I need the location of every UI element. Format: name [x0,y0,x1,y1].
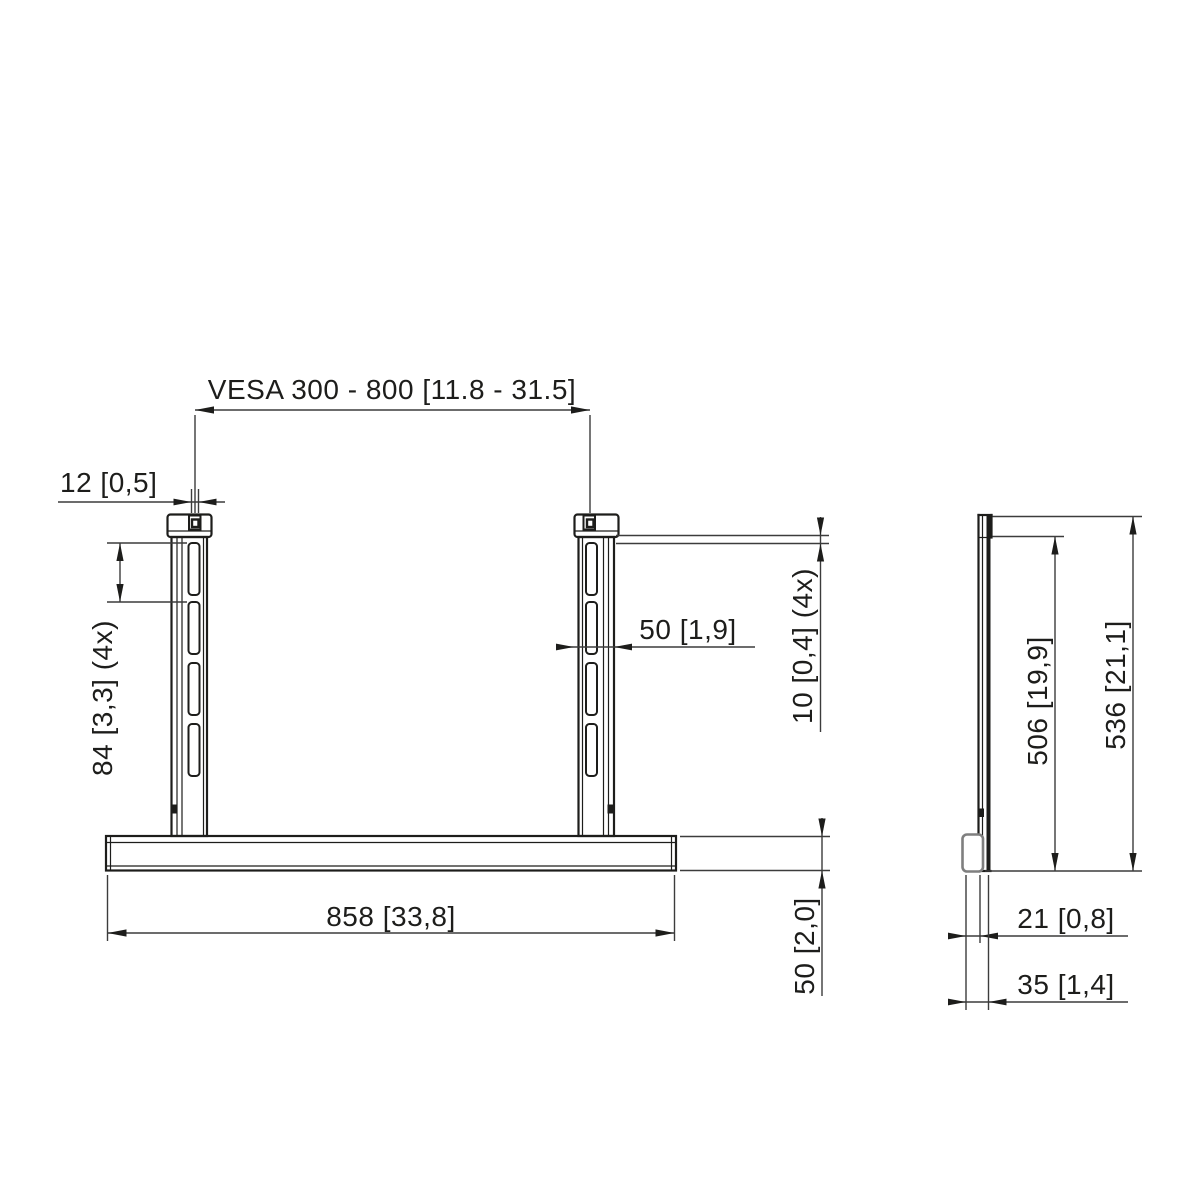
total-height-label: 536 [21,1] [1100,620,1131,750]
arrowhead-right [614,644,632,651]
arrowhead-top [116,543,123,561]
column-width-label: 50 [1,9] [639,614,736,645]
dimension-base-width: 858 [33,8] [108,875,675,941]
column-height-label: 506 [19,9] [1022,636,1053,766]
side-profile-pin [980,809,985,818]
arrowhead-bottom [1051,853,1058,871]
right-column-slot-3 [586,663,597,715]
technical-drawing-canvas: VESA 300 - 800 [11.8 - 31.5] 12 [0,5] 84… [0,0,1200,1200]
right-column-slot-1 [586,543,597,595]
dimension-column-height: 506 [19,9] [993,537,1065,872]
left-column-pin [172,805,177,814]
dimension-total-height: 536 [21,1] [985,517,1142,872]
arrowhead-bottom [817,544,824,562]
left-column-top-tab-hole [192,520,199,528]
dimension-base-height: 50 [2,0] [680,818,830,996]
foot-depth-label: 21 [0,8] [1017,903,1114,934]
arrowhead-top [1129,517,1136,535]
left-column-slot-2 [189,602,200,654]
right-column [575,515,619,837]
arrowhead-top [1051,537,1058,555]
arrowhead-right [199,499,217,506]
arrowhead-top [817,518,824,536]
side-view: 506 [19,9] 536 [21,1] 21 [0,8] 35 [1 [948,515,1142,1010]
arrowhead-left [556,644,574,651]
profile-front-face [987,515,991,871]
arrowhead-top [818,819,825,837]
right-column-slot-4 [586,724,597,776]
arrowhead-left [195,406,214,413]
slot-inset-label: 10 [0,4] (4x) [787,568,818,724]
left-column-slot-3 [189,663,200,715]
right-column-cap [575,515,619,538]
base-height-label: 50 [2,0] [789,897,820,994]
left-column-slot-4 [189,724,200,776]
base-bar [106,836,676,871]
top-tab-width-label: 12 [0,5] [60,467,157,498]
vesa-range-label: VESA 300 - 800 [11.8 - 31.5] [208,374,576,405]
arrowhead-left [108,929,127,936]
arrowhead-bottom [1129,853,1136,871]
slot-pitch-label: 84 [3,3] (4x) [87,620,118,776]
arrowhead-bottom [116,584,123,602]
right-column-top-tab-hole [587,520,594,528]
front-view: VESA 300 - 800 [11.8 - 31.5] 12 [0,5] 84… [58,374,830,996]
right-column-pin [608,805,614,814]
arrowhead-bottom [818,871,825,889]
arrowhead-left [174,499,192,506]
arrowhead-right [656,929,675,936]
arrowhead-left [948,933,966,940]
dimension-vesa-range: VESA 300 - 800 [11.8 - 31.5] [195,374,590,513]
base-width-label: 858 [33,8] [326,901,456,932]
left-column [168,515,212,837]
dimension-top-tab-width: 12 [0,5] [58,467,225,513]
dimension-base-depth: 35 [1,4] [948,875,1128,1010]
arrowhead-right [989,999,1007,1006]
right-column-slot-2 [586,602,597,654]
arrowhead-left [948,999,966,1006]
base-bar-outline [106,836,676,871]
base-depth-label: 35 [1,4] [1017,969,1114,1000]
side-foot [963,835,984,872]
left-column-slot-1 [189,543,200,595]
arrowhead-right [571,406,590,413]
side-profile [963,515,992,872]
